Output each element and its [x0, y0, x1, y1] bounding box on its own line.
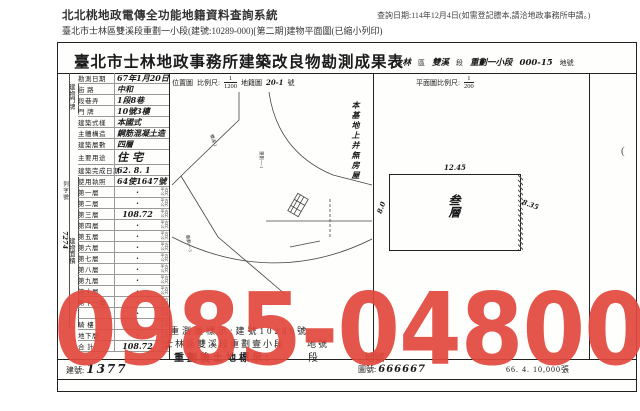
- unit-stamp: 平方公尺: [160, 254, 169, 262]
- row-value-handwritten: 鋼筋混凝土造: [114, 128, 169, 139]
- floor-area-row: 第七層·平方公尺: [78, 253, 169, 264]
- attribute-row: 建築層數四層: [78, 139, 169, 150]
- unit-stamp: 平方公尺: [160, 199, 169, 207]
- cadastral-map-no-suffix: 號: [287, 78, 294, 88]
- district-handwritten: 士林: [394, 56, 411, 68]
- unit-stamp: 平方公尺: [160, 221, 169, 229]
- floor-label: 第三層: [78, 209, 114, 219]
- no-building-note-handwritten: 本基地上并無房屋: [351, 101, 362, 181]
- attribute-row: 街 路中和: [78, 84, 169, 95]
- location-map-label: 位置圖: [172, 78, 193, 88]
- row-label: 建築層數: [78, 139, 114, 149]
- floor-ditto-dot: ·: [114, 253, 160, 263]
- row-label: 建築完成日期: [78, 165, 114, 175]
- district-label: 區: [418, 58, 425, 68]
- section-handwritten: 雙溪: [432, 56, 449, 68]
- row-label: 街 路: [78, 84, 114, 94]
- floor-ditto-dot: ·: [114, 198, 160, 208]
- hatch-marks: [518, 175, 523, 250]
- plan-scale-fraction: 1 200: [464, 75, 474, 90]
- location-scale-fraction: 1 1200: [224, 75, 237, 90]
- attribute-row: 段巷弄1段8巷: [78, 95, 169, 106]
- scanned-document-page: 北北桃地政電傳全功能地籍資料查詢系統 查詢日期:114年12月4日(如需登記謄本…: [0, 0, 640, 411]
- ref-number-handwritten: 7274: [60, 231, 69, 249]
- row-label: 建築式樣: [78, 117, 114, 127]
- attribute-row: 勘測日期67年1月20日: [78, 73, 169, 84]
- row-label: 主要用途: [78, 152, 114, 162]
- cadastral-map-no-handwritten: 20-1: [266, 78, 284, 87]
- row-value-handwritten: 1段8巷: [114, 95, 169, 106]
- floor-plan-scale-label: 平面圖比例尺:: [416, 78, 460, 88]
- floor-label: 第四層: [78, 220, 114, 230]
- floor-label-handwritten: 叁層: [446, 194, 463, 218]
- floor-area-row: 第一層·平方公尺: [78, 187, 169, 198]
- attribute-row: 主要用途住宅: [78, 150, 169, 165]
- scale-numerator: 1: [224, 75, 237, 83]
- sheet-title: 臺北市士林地政事務所建築改良物勘測成果表: [74, 50, 404, 72]
- query-date-note: 查詢日期:114年12月4日(如需登記謄本,請洽地政事務所申請。): [377, 10, 590, 21]
- floor-label: 第七層: [78, 253, 114, 263]
- floor-label: 第二層: [78, 198, 114, 208]
- floor-area-row: 第六層·平方公尺: [78, 242, 169, 253]
- row-label: 門 牌: [78, 106, 114, 116]
- dimension-left: 8.0: [375, 200, 388, 215]
- plan-scale-numerator: 1: [464, 75, 474, 83]
- parcel-label: 地號: [560, 58, 574, 68]
- road-curve-lower: [172, 237, 372, 263]
- unit-stamp: 平方公尺: [160, 188, 169, 196]
- group-label-address-text: 建物門牌: [69, 85, 78, 111]
- parcel-number-handwritten: 000-15: [520, 58, 553, 68]
- plan-scale-denominator: 200: [464, 83, 474, 90]
- section-parcel-line: 士林 區 雙溪 段 重劃一小段 000-15 地號: [394, 56, 574, 68]
- row-value-handwritten: 62. 8. 1: [114, 165, 169, 175]
- row-value-handwritten: 64使1647號: [114, 176, 169, 187]
- floor-area-row: 第四層·平方公尺: [78, 220, 169, 231]
- scale-label: 比例尺:: [197, 78, 220, 88]
- floor-area-row: 第三層108.72平方公尺: [78, 209, 169, 220]
- binding-paren-artifact: (: [621, 145, 625, 157]
- floor-area-row: 第二層·平方公尺: [78, 198, 169, 209]
- ref-label: 列字號: [60, 181, 69, 201]
- unit-stamp: 平方公尺: [160, 232, 169, 240]
- attribute-row: 建築完成日期62. 8. 1: [78, 165, 169, 176]
- location-map-header: 位置圖 比例尺: 1 1200 地籍圖 20-1 號: [172, 75, 294, 90]
- row-label: 段巷弄: [78, 95, 114, 105]
- dimension-right: 8.35: [521, 197, 540, 211]
- floor-ditto-dot: ·: [114, 242, 160, 252]
- boundary-short: [290, 241, 320, 247]
- attribute-row: 建築式樣本國式: [78, 117, 169, 128]
- section-label: 段: [456, 58, 463, 68]
- parcel-boundary-line: [172, 92, 239, 185]
- dimension-top: 12.45: [444, 163, 466, 172]
- attribute-row: 主體構造鋼筋混凝土造: [78, 128, 169, 139]
- row-value-handwritten: 本國式: [114, 117, 169, 128]
- floor-label: 第五層: [78, 231, 114, 241]
- row-label: 主體構造: [78, 128, 114, 138]
- subject-building-mark: [288, 193, 308, 216]
- row-label: 勘測日期: [78, 73, 114, 83]
- unit-stamp: 平方公尺: [160, 210, 169, 218]
- row-value-handwritten: 10號3樓: [114, 106, 169, 117]
- floor-ditto-dot: ·: [114, 187, 160, 197]
- floor-plan-header: 平面圖比例尺: 1 200: [416, 75, 474, 90]
- document-subtitle: 臺北市士林區雙溪段重劃一小段(建號:10289-000)[第二期]建物平面圖(已…: [62, 24, 382, 37]
- row-label: 使用執照: [78, 176, 114, 186]
- floor-label: 第六層: [78, 242, 114, 252]
- group-label-area-text: 建物面積: [69, 239, 78, 265]
- floor-area-handwritten: 108.72: [114, 209, 160, 219]
- parcel-label-2: 重劃一-1: [258, 151, 265, 168]
- floor-area-row: 第五層·平方公尺: [78, 231, 169, 242]
- subsection-handwritten: 重劃一小段: [470, 56, 513, 68]
- row-value-handwritten: 67年1月20日: [114, 73, 169, 84]
- floor-label: 第一層: [78, 187, 114, 197]
- row-value-handwritten: 中和: [114, 84, 169, 95]
- system-title: 北北桃地政電傳全功能地籍資料查詢系統: [62, 7, 278, 23]
- attribute-row: 使用執照64使1647號: [78, 176, 169, 187]
- unit-stamp: 平方公尺: [160, 243, 169, 251]
- cadastral-map-label: 地籍圖: [241, 78, 262, 88]
- row-value-handwritten: 四層: [114, 139, 169, 150]
- row-value-handwritten: 住宅: [114, 150, 169, 165]
- phone-number-watermark: 0985-048006: [54, 280, 640, 380]
- floor-ditto-dot: ·: [114, 231, 160, 241]
- floor-ditto-dot: ·: [114, 220, 160, 230]
- attribute-row: 門 牌10號3樓: [78, 106, 169, 117]
